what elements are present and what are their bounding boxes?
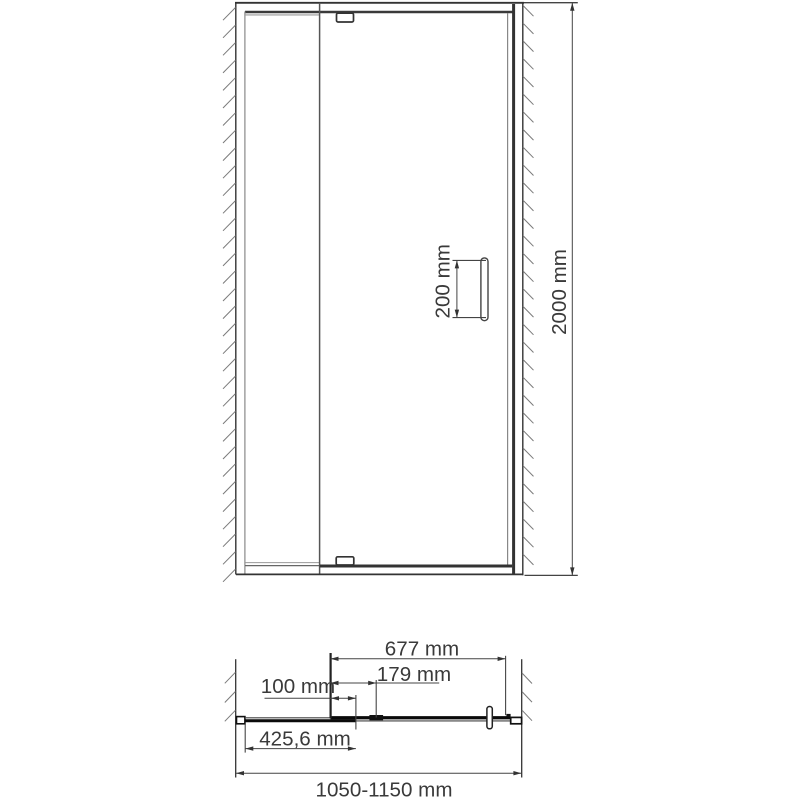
svg-text:677 mm: 677 mm: [385, 637, 459, 660]
svg-text:200 mm: 200 mm: [432, 244, 455, 318]
svg-text:425,6 mm: 425,6 mm: [259, 727, 351, 750]
svg-text:2000 mm: 2000 mm: [548, 249, 571, 335]
svg-text:179 mm: 179 mm: [377, 663, 451, 686]
svg-text:1050-1150 mm: 1050-1150 mm: [316, 779, 453, 800]
svg-text:100 mm: 100 mm: [261, 675, 335, 698]
